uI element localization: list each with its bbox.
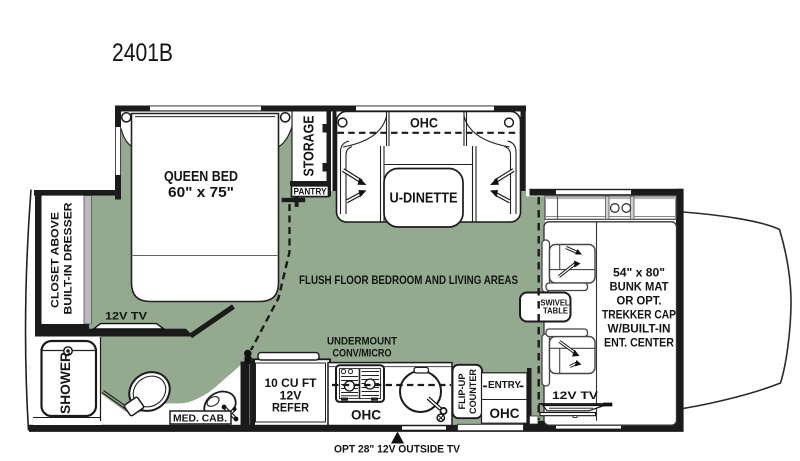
svg-text:60" x 75": 60" x 75" [168,185,234,201]
svg-text:UNDERMOUNT: UNDERMOUNT [327,336,397,348]
svg-text:10 CU FT: 10 CU FT [265,378,317,390]
svg-text:OHC: OHC [410,115,438,131]
svg-text:OHC: OHC [490,406,520,421]
svg-text:COUNTER: COUNTER [468,369,479,414]
svg-text:OR OPT.: OR OPT. [617,294,662,308]
svg-text:W/BUILT-IN: W/BUILT-IN [608,322,671,336]
svg-text:OHC: OHC [351,408,381,423]
svg-text:SHOWER: SHOWER [57,352,73,414]
svg-text:2401B: 2401B [112,39,173,67]
svg-text:FLUSH FLOOR BEDROOM AND LIVING: FLUSH FLOOR BEDROOM AND LIVING AREAS [299,273,518,287]
svg-text:12V: 12V [280,391,302,403]
svg-text:BUNK MAT: BUNK MAT [610,280,670,294]
svg-text:OPT 28" 12V OUTSIDE TV: OPT 28" 12V OUTSIDE TV [334,444,461,456]
svg-text:REFER: REFER [272,403,310,415]
svg-text:TREKKER CAP: TREKKER CAP [602,308,676,322]
svg-text:CONV/MICRO: CONV/MICRO [333,348,392,360]
svg-text:12V TV: 12V TV [552,390,599,402]
svg-text:ENT. CENTER: ENT. CENTER [604,336,674,350]
svg-text:STORAGE: STORAGE [301,116,318,177]
svg-text:MED. CAB.: MED. CAB. [173,414,227,425]
svg-text:TABLE: TABLE [543,306,568,316]
svg-text:ENTRY: ENTRY [488,379,521,391]
svg-text:U-DINETTE: U-DINETTE [390,191,458,207]
svg-text:QUEEN BED: QUEEN BED [164,169,238,185]
svg-text:54" x 80": 54" x 80" [613,266,665,280]
svg-text:12V TV: 12V TV [105,311,148,323]
svg-text:CLOSET ABOVE: CLOSET ABOVE [50,212,62,308]
svg-text:PANTRY: PANTRY [294,187,328,198]
svg-text:BUILT-IN DRESSER: BUILT-IN DRESSER [63,202,75,314]
svg-text:FLIP-UP: FLIP-UP [457,373,468,410]
